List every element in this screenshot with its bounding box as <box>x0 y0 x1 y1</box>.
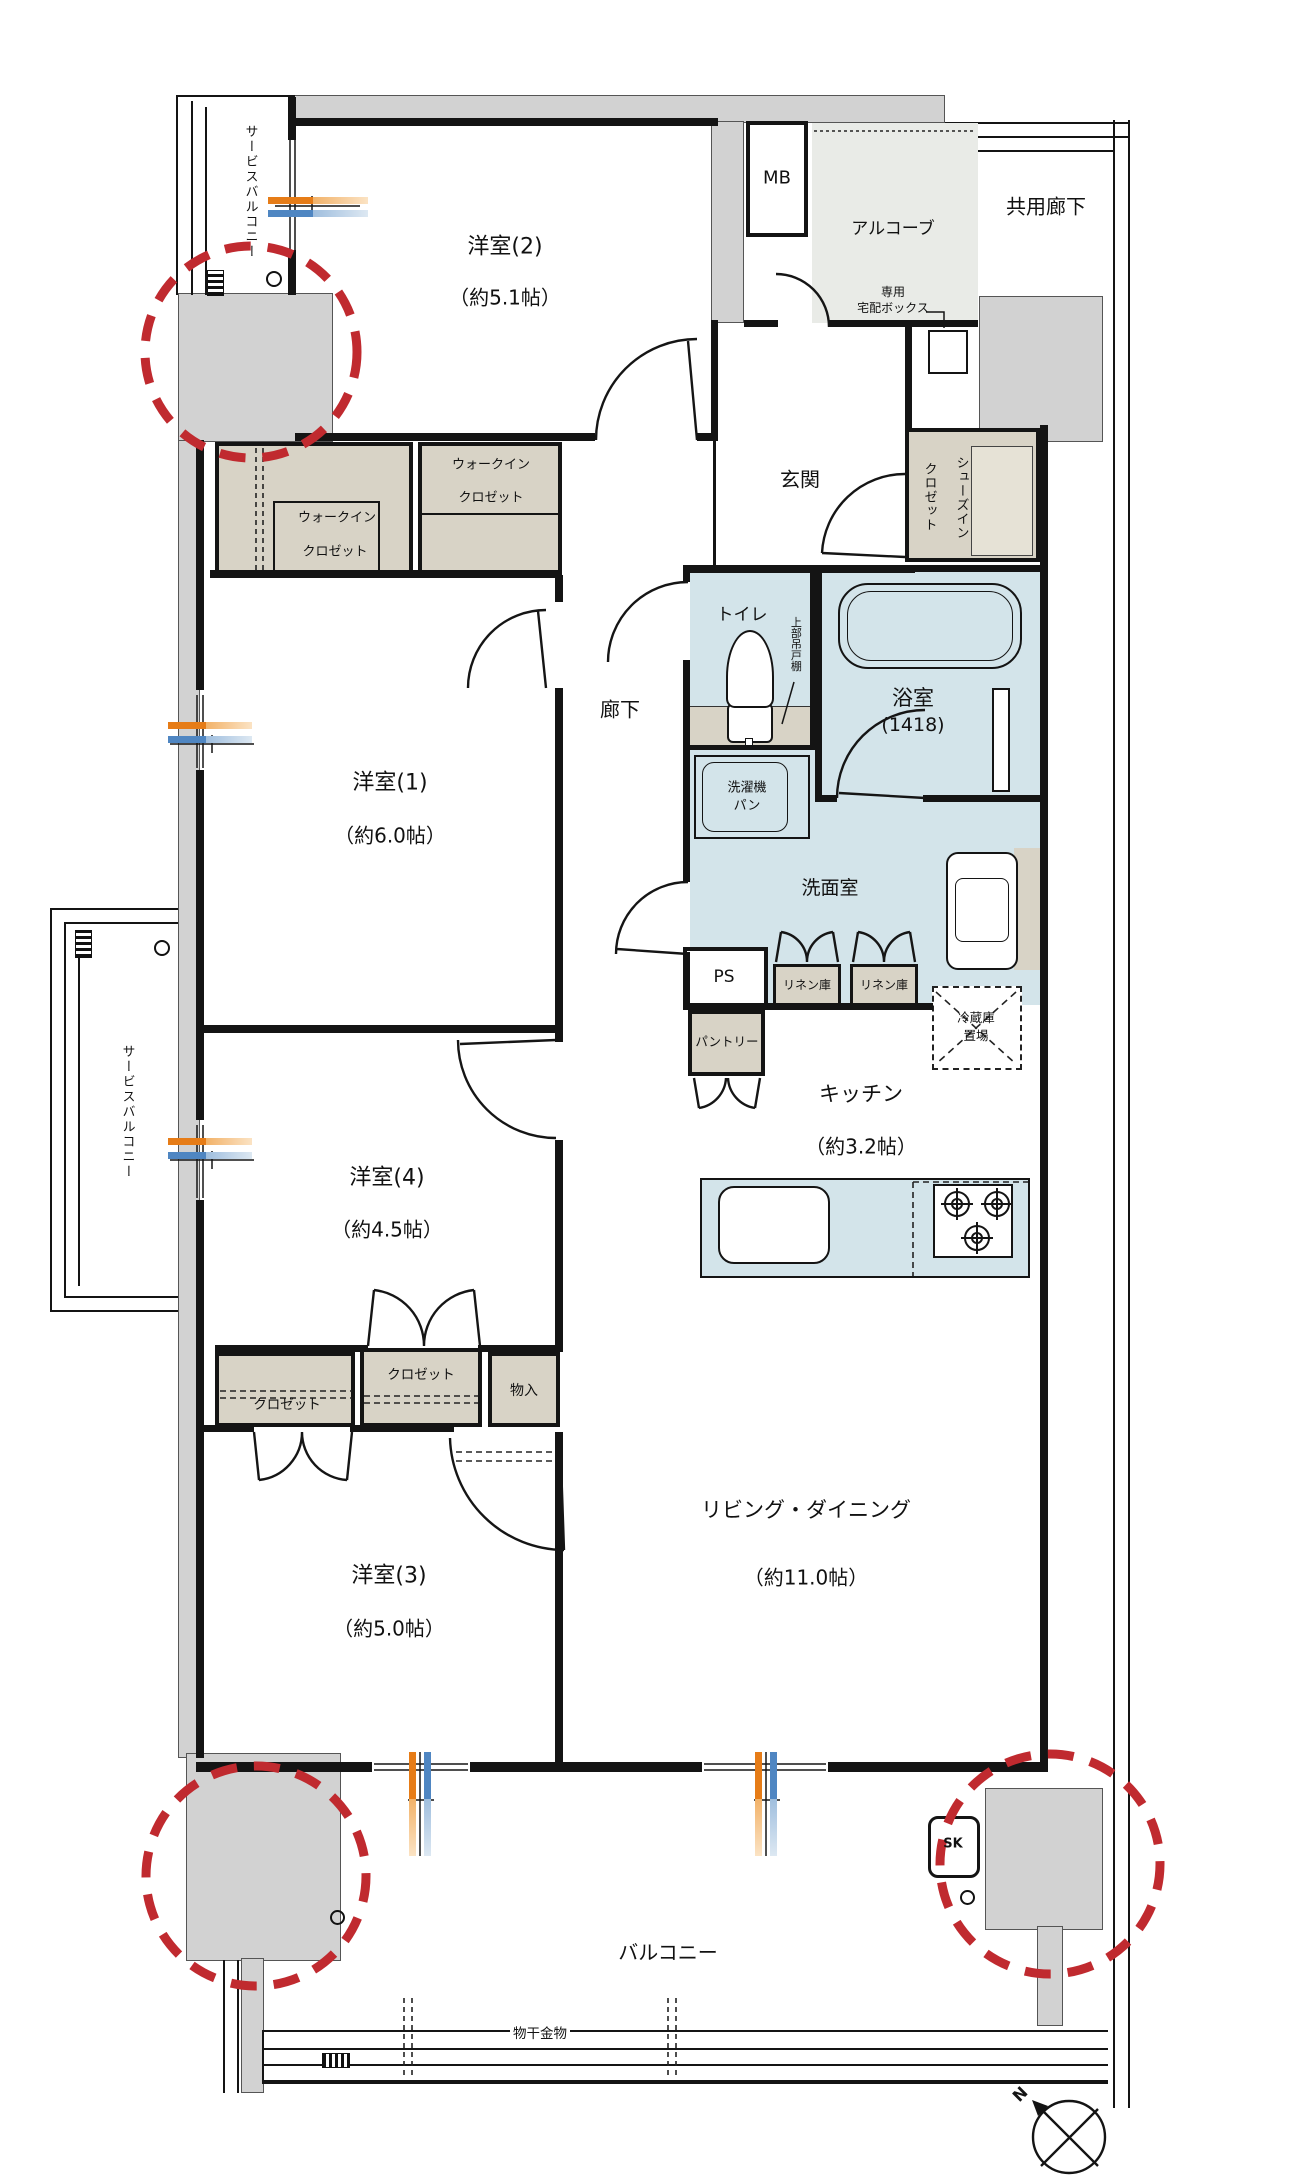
kitchen-name: キッチン <box>819 1082 903 1106</box>
upper-cabinet-label: 上部吊戸棚 <box>789 617 802 672</box>
shoes-closet-label-1: シューズイン <box>953 456 968 540</box>
washroom-label: 洗面室 <box>801 878 858 900</box>
window-frame-lines <box>374 1752 468 1856</box>
common-corridor-label: 共用廊下 <box>1006 196 1086 219</box>
storage-label: 物入 <box>510 1383 538 1399</box>
western2-name: 洋室(2) <box>467 234 542 259</box>
window-marker-blue <box>168 736 252 743</box>
balcony-label: バルコニー <box>618 1942 718 1965</box>
western1-name: 洋室(1) <box>352 770 427 795</box>
door-arcs-pantry <box>694 1078 760 1108</box>
door-arcs-closet-western4 <box>368 1290 480 1346</box>
pipe-space-label: PS <box>713 968 734 988</box>
door-arc-western2 <box>596 339 697 440</box>
fridge-label-1: 冷蔵庫 <box>957 1011 995 1025</box>
window-marker-orange <box>168 722 252 729</box>
western3-size: （約5.0帖） <box>333 1618 445 1641</box>
alcove-label: アルコーブ <box>851 220 934 240</box>
living-dining-name: リビング・ダイニング <box>701 1498 911 1522</box>
stove-burners <box>941 1188 1013 1254</box>
window-marker-orange <box>268 197 368 204</box>
service-balcony-left-label: サービスバルコニー <box>119 1045 134 1180</box>
compass <box>1032 2100 1105 2173</box>
door-arc-toilet <box>608 582 688 662</box>
plan-symbol-overlay: N <box>0 0 1300 2180</box>
western1-size: （約6.0帖） <box>334 825 446 848</box>
hanger-pipe-dashes <box>256 448 263 570</box>
hallway-label: 廊下 <box>600 699 640 722</box>
bath-size: (1418) <box>881 715 944 737</box>
laundry-hardware-label: 物干金物 <box>510 2027 570 2043</box>
wic-right-label-2: クロゼット <box>458 492 523 507</box>
bath-name: 浴室 <box>892 686 934 710</box>
shoes-closet-label-2: クロゼット <box>921 462 936 532</box>
door-arcs-closet-western3 <box>254 1432 352 1480</box>
western4-size: （約4.5帖） <box>331 1219 443 1242</box>
window-marker-orange <box>168 1138 252 1145</box>
closet-mid-label: クロゼット <box>387 1368 455 1384</box>
wic-left-label-2: クロゼット <box>302 546 367 561</box>
western2-size: （約5.1帖） <box>449 287 561 310</box>
western3-name: 洋室(3) <box>351 1563 426 1588</box>
door-arc-washroom <box>616 882 688 954</box>
wic-left-label-1: ウォークイン <box>298 512 376 527</box>
linen-label-2: リネン庫 <box>860 979 908 993</box>
door-arcs-linen <box>776 932 915 962</box>
kitchen-size: （約3.2帖） <box>805 1136 917 1159</box>
door-arc-western4 <box>458 1040 556 1138</box>
window-frame-lines <box>704 1752 826 1856</box>
door-arc-western1 <box>468 610 546 688</box>
window-marker-orange <box>409 1752 416 1856</box>
entrance-label: 玄関 <box>780 469 820 492</box>
western4-name: 洋室(4) <box>349 1165 424 1190</box>
delivery-box-label-1: 専用 <box>881 286 905 300</box>
window-marker-orange <box>755 1752 762 1856</box>
service-balcony-top-label: サービスバルコニー <box>242 125 257 260</box>
door-arc-shoes-closet <box>822 474 905 557</box>
door-arc-entrance <box>776 274 829 327</box>
washer-pan-label-1: 洗濯機 <box>727 782 766 797</box>
doorway-dashes <box>456 1452 556 1461</box>
window-marker-blue <box>424 1752 431 1856</box>
floor-plan: N サービスバルコニー 洋室(2) （約5.1帖） MB アルコーブ 共用廊下 … <box>0 0 1300 2180</box>
window-marker-blue <box>268 210 368 217</box>
window-frame-lines <box>170 695 254 768</box>
living-dining-size: （約11.0帖） <box>744 1567 869 1590</box>
delivery-box-label-2: 宅配ボックス <box>857 302 929 316</box>
compass-north-label: N <box>1009 2083 1032 2106</box>
washer-pan-label-2: パン <box>734 800 761 815</box>
toilet-label: トイレ <box>717 606 768 626</box>
pantry-label: パントリー <box>695 1035 758 1049</box>
leader-upper-cabinet <box>782 682 794 724</box>
meter-box-label: MB <box>763 169 791 190</box>
closet-left-label: クロゼット <box>253 1398 321 1414</box>
wic-right-label-1: ウォークイン <box>452 459 530 474</box>
fridge-label-2: 置場 <box>963 1029 988 1043</box>
window-frame-lines <box>170 1125 254 1198</box>
window-marker-blue <box>770 1752 777 1856</box>
highlight-circle-bottom-left <box>146 1766 366 1986</box>
highlight-circle-top-left <box>145 246 357 458</box>
window-frame-lines <box>275 140 360 250</box>
linen-label-1: リネン庫 <box>783 979 831 993</box>
highlight-circle-bottom-right <box>940 1754 1160 1974</box>
slop-sink-label: SK <box>943 1838 962 1853</box>
window-marker-blue <box>168 1152 252 1159</box>
